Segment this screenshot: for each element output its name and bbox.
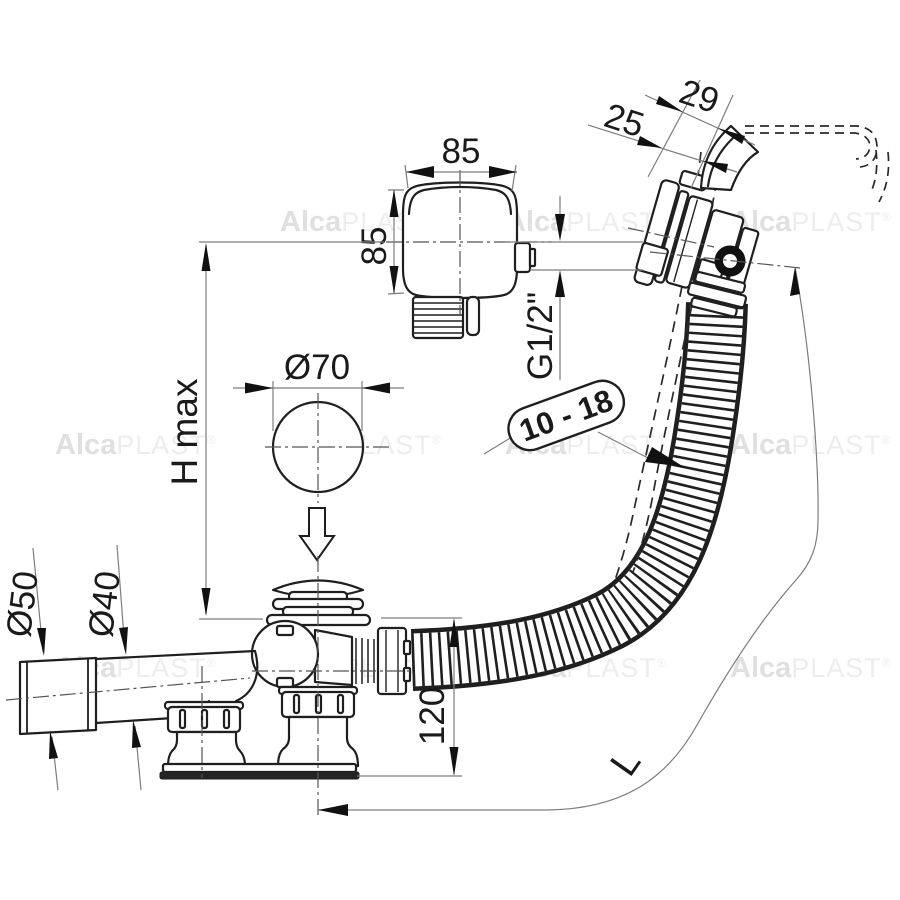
dim-label-box-height: 85 bbox=[355, 227, 394, 266]
tub-rim-dashed bbox=[745, 126, 889, 202]
watermark: AlcaPLAST® bbox=[730, 652, 891, 684]
bottom-flange bbox=[160, 764, 359, 779]
dim-label-body-height: 120 bbox=[413, 687, 452, 745]
watermark: AlcaPLAST® bbox=[730, 429, 891, 461]
control-rod bbox=[467, 297, 479, 335]
watermark: AlcaPLAST® bbox=[505, 206, 666, 238]
dim-label-sleeve-diameter: Ø50 bbox=[0, 569, 46, 639]
dim-label-height-max: H max bbox=[164, 378, 205, 485]
hose-nut bbox=[378, 628, 406, 694]
side-port bbox=[515, 243, 530, 272]
cable-strain-relief bbox=[413, 297, 463, 338]
elbow-skirt bbox=[168, 732, 245, 766]
dim-label-plug-diameter: Ø70 bbox=[284, 348, 350, 387]
insert-direction-arrow bbox=[300, 508, 334, 560]
waste-assembly bbox=[252, 581, 410, 767]
dim-label-box-width: 85 bbox=[442, 132, 481, 171]
dim-label-thread: G1/2" bbox=[521, 292, 560, 380]
drawing-canvas: AlcaPLAST® AlcaPLAST® AlcaPLAST® AlcaPLA… bbox=[0, 0, 900, 900]
outlet-sleeve bbox=[20, 658, 96, 734]
technical-drawing-bath-waste: AlcaPLAST® AlcaPLAST® AlcaPLAST® AlcaPLA… bbox=[0, 0, 900, 900]
dim-label-pipe-diameter: Ø40 bbox=[81, 569, 128, 639]
control-box bbox=[403, 183, 535, 339]
dim-label-hose-length: L bbox=[603, 742, 650, 783]
corrugated-hose bbox=[412, 303, 717, 660]
